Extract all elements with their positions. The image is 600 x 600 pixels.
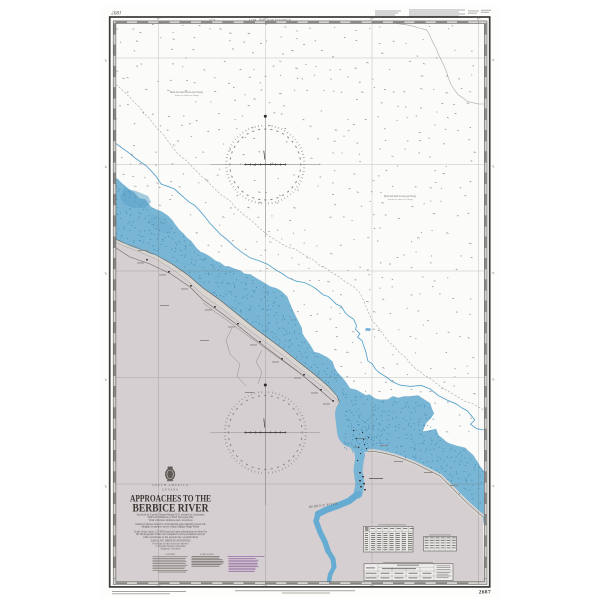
svg-text:Heights in metres above Mean H: Heights in metres above Mean Higher High… bbox=[142, 526, 200, 529]
svg-text:57°: 57° bbox=[263, 585, 267, 588]
svg-text:57°: 57° bbox=[370, 18, 374, 21]
svg-text:6°: 6° bbox=[491, 485, 494, 487]
svg-text:57°10: 57°10 bbox=[209, 19, 216, 22]
svg-text:depths are subject to change: depths are subject to change bbox=[175, 94, 199, 97]
svg-text:57°: 57° bbox=[370, 585, 374, 588]
svg-text:6°: 6° bbox=[105, 485, 108, 487]
svg-text:6°: 6° bbox=[105, 272, 108, 274]
svg-text:6°: 6° bbox=[105, 379, 108, 381]
svg-text:1897: 1897 bbox=[111, 9, 122, 14]
svg-text:Long. West from Greenwich: Long. West from Greenwich bbox=[249, 19, 291, 22]
svg-text:6°: 6° bbox=[105, 166, 108, 168]
svg-text:SOUTH AMERICA: SOUTH AMERICA bbox=[152, 483, 189, 487]
svg-text:Magnetic Variation: Magnetic Variation bbox=[161, 548, 182, 551]
svg-text:Vidal with later additions and: Vidal with later additions and correctio… bbox=[149, 519, 193, 522]
svg-text:6°: 6° bbox=[105, 59, 108, 61]
svg-text:CAUTION: CAUTION bbox=[165, 553, 175, 556]
svg-text:SAND WAVES: SAND WAVES bbox=[200, 553, 214, 556]
svg-text:depths are subject to change: depths are subject to change bbox=[388, 198, 413, 201]
svg-text:6°: 6° bbox=[491, 272, 494, 274]
svg-text:57°: 57° bbox=[157, 18, 161, 21]
svg-text:57°: 57° bbox=[157, 585, 161, 588]
svg-text:6°: 6° bbox=[491, 166, 494, 168]
svg-text:57°: 57° bbox=[477, 18, 481, 21]
svg-text:2687: 2687 bbox=[479, 590, 491, 596]
svg-text:6°: 6° bbox=[491, 59, 494, 61]
svg-text:GUYANA: GUYANA bbox=[162, 488, 179, 492]
svg-text:6°: 6° bbox=[491, 379, 494, 381]
svg-text:with corrections to the presen: with corrections to the present day of p… bbox=[143, 536, 199, 539]
